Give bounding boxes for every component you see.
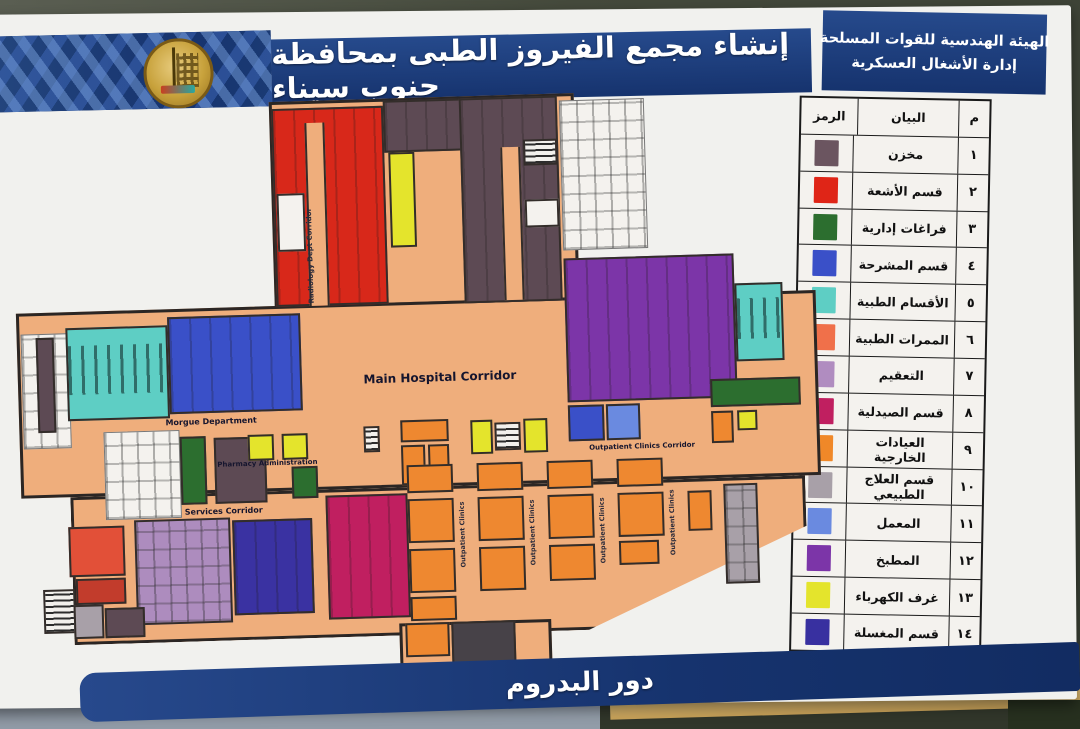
legend-row-label: الممرات الطبية xyxy=(849,320,955,358)
zone-sterilization xyxy=(134,517,233,625)
photo-background: إنشاء مجمع الفيروز الطبى بمحافظة جنوب سي… xyxy=(0,0,1080,729)
zone-medical-departments xyxy=(65,325,170,421)
org-banner: الهيئة الهندسية للقوات المسلحة إدارة الأ… xyxy=(822,10,1047,94)
zone-outpatient-room xyxy=(479,546,526,591)
legend-header-symbol: الرمز xyxy=(801,98,858,135)
legend-row-number: ٥ xyxy=(954,285,986,321)
legend-row-label: فراغات إدارية xyxy=(851,209,957,247)
zone-white-rooms-mid xyxy=(103,430,182,520)
legend-row-label: مخزن xyxy=(852,136,958,174)
zone-outpatient-room xyxy=(619,540,660,565)
zone-pharmacy xyxy=(325,493,411,619)
zone-storage-bl xyxy=(105,607,146,638)
floor-name: دور البدروم xyxy=(505,665,654,700)
zone-outpatient-room xyxy=(617,492,664,537)
zone-electricity-room xyxy=(737,410,758,431)
zone-outpatient-room xyxy=(408,498,455,543)
legend-row: ١٢المطبخ xyxy=(792,540,981,580)
stairs-block xyxy=(43,589,76,634)
legend-row: ١٠قسم العلاج الطبيعي xyxy=(794,466,983,506)
legend-row-number: ٤ xyxy=(955,248,987,284)
legend-row-label: قسم الأشعة xyxy=(852,172,958,210)
stairs-block xyxy=(363,426,380,452)
zone-dark-left xyxy=(36,338,57,433)
legend-row: ٥الأقسام الطبية xyxy=(797,282,986,322)
zone-electricity-strip xyxy=(388,152,417,248)
legend-color-swatch xyxy=(813,213,837,239)
legend-row-symbol xyxy=(800,135,853,172)
background-corner xyxy=(1008,700,1080,729)
legend-row-label: العيادات الخارجية xyxy=(847,430,953,468)
legend-row: ٣فراغات إدارية xyxy=(799,208,988,248)
zone-outpatient-room xyxy=(616,458,663,487)
zone-medical-corridor-rooms xyxy=(76,578,127,605)
zone-unassigned-rooms xyxy=(559,98,648,250)
zone-outpatient-room xyxy=(546,460,593,489)
legend-row-number: ١ xyxy=(957,138,989,174)
zone-white-rooms xyxy=(276,193,306,252)
legend-row-label: غرف الكهرباء xyxy=(844,578,950,616)
zone-admin-green xyxy=(292,466,319,499)
zone-admin-green-right xyxy=(710,377,801,408)
org-name-line2: إدارة الأشغال العسكرية xyxy=(851,55,1017,74)
zone-laboratory xyxy=(606,403,641,440)
legend-row-number: ٨ xyxy=(952,395,984,431)
legend-row-label: قسم المشرحة xyxy=(850,246,956,284)
legend-row-number: ١٣ xyxy=(949,580,981,616)
legend-row-number: ١٠ xyxy=(951,469,983,505)
zone-orange-stub xyxy=(405,622,450,657)
zone-orange-rooms xyxy=(400,419,449,442)
poster-board: إنشاء مجمع الفيروز الطبى بمحافظة جنوب سي… xyxy=(0,5,1077,709)
legend-row: ١١المعمل xyxy=(793,503,982,543)
legend-row: ٩العيادات الخارجية xyxy=(795,429,984,469)
zone-medical-corridor-rooms xyxy=(68,526,125,578)
legend-row: ٢قسم الأشعة xyxy=(800,171,989,211)
zone-outpatient-room xyxy=(478,496,525,541)
zone-outpatient-room xyxy=(410,596,457,621)
legend-header-num: م xyxy=(958,101,990,137)
zone-outpatient-room xyxy=(477,462,524,491)
legend-row: ٤قسم المشرحة xyxy=(798,245,987,285)
zone-electricity-room xyxy=(523,418,548,453)
zone-morgue xyxy=(167,313,303,414)
legend-row-number: ٧ xyxy=(953,359,985,395)
legend-row-number: ٢ xyxy=(957,174,989,210)
zone-laundry xyxy=(232,518,315,615)
zone-medical-teal-right xyxy=(734,282,784,361)
legend-row-label: المعمل xyxy=(845,504,951,542)
legend-row-number: ١١ xyxy=(950,506,982,542)
legend-row-label: قسم الصيدلية xyxy=(847,393,953,431)
zone-outpatient-room xyxy=(407,464,454,493)
elevator-block xyxy=(494,422,521,451)
legend-row: ٧التعقيم xyxy=(796,356,985,396)
legend-row-label: الأقسام الطبية xyxy=(849,283,955,321)
legend-row-number: ٩ xyxy=(952,432,984,468)
legend-row-label: التعقيم xyxy=(848,357,954,395)
zone-white-rooms xyxy=(525,199,560,228)
stairs-block xyxy=(523,139,558,166)
zone-orange-room-right xyxy=(711,411,734,444)
zone-gray-rooms xyxy=(74,604,105,639)
zone-electricity-room xyxy=(248,434,275,461)
legend-color-swatch xyxy=(814,177,838,203)
legend-color-swatch xyxy=(812,250,836,276)
zone-outpatient-room xyxy=(547,494,594,539)
legend-color-swatch xyxy=(814,140,838,166)
zone-electricity-room xyxy=(282,433,309,460)
zone-outpatient-room xyxy=(549,544,596,581)
legend-row-number: ٣ xyxy=(956,211,988,247)
zone-admin-green xyxy=(180,436,208,505)
zone-blue-rooms xyxy=(568,404,605,441)
legend-row: ٨قسم الصيدلية xyxy=(795,392,984,432)
org-name-line1: الهيئة الهندسية للقوات المسلحة xyxy=(820,30,1050,50)
legend-header-description: البيان xyxy=(857,99,959,137)
legend-row-label: قسم العلاج الطبيعي xyxy=(846,467,952,505)
legend-row-label: المطبخ xyxy=(845,541,951,579)
legend-row: ١مخزن xyxy=(800,135,989,175)
legend-row: ٦الممرات الطبية xyxy=(797,319,986,359)
floor-plan: Main Hospital Corridor Morgue Department… xyxy=(2,83,823,695)
zone-physiotherapy xyxy=(723,483,760,584)
zone-outpatient-room xyxy=(409,548,456,593)
zone-outpatient-room xyxy=(687,490,712,531)
legend-header-row: م البيان الرمز xyxy=(801,98,990,138)
legend-row-number: ١٢ xyxy=(949,543,981,579)
legend-row-number: ٦ xyxy=(954,322,986,358)
zone-electricity-room xyxy=(470,420,493,455)
